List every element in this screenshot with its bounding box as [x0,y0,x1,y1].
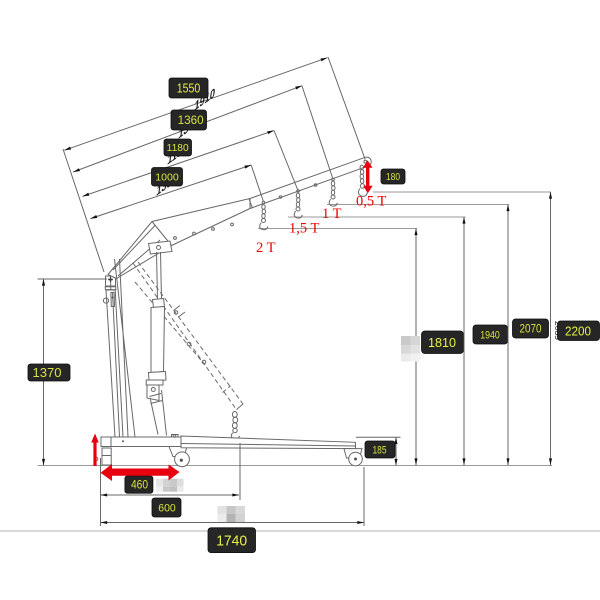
svg-text:2 T: 2 T [256,240,276,256]
svg-text:180: 180 [386,172,400,183]
svg-text:0,5 T: 0,5 T [356,194,386,210]
svg-text:2070: 2070 [520,324,542,336]
svg-text:1370: 1370 [33,366,62,380]
svg-text:1000: 1000 [155,172,179,184]
svg-text:185: 185 [373,445,387,457]
svg-text:460: 460 [131,480,148,492]
svg-text:2200: 2200 [565,324,591,338]
svg-text:1 T: 1 T [322,206,342,222]
svg-text:1360: 1360 [178,115,204,127]
svg-text:1180: 1180 [167,143,189,154]
svg-text:1940: 1940 [480,329,500,341]
svg-text:1810: 1810 [428,335,456,350]
svg-text:1740: 1740 [216,533,247,550]
svg-text:1550: 1550 [177,81,201,96]
svg-text:600: 600 [158,503,176,515]
svg-text:1,5 T: 1,5 T [289,221,319,237]
